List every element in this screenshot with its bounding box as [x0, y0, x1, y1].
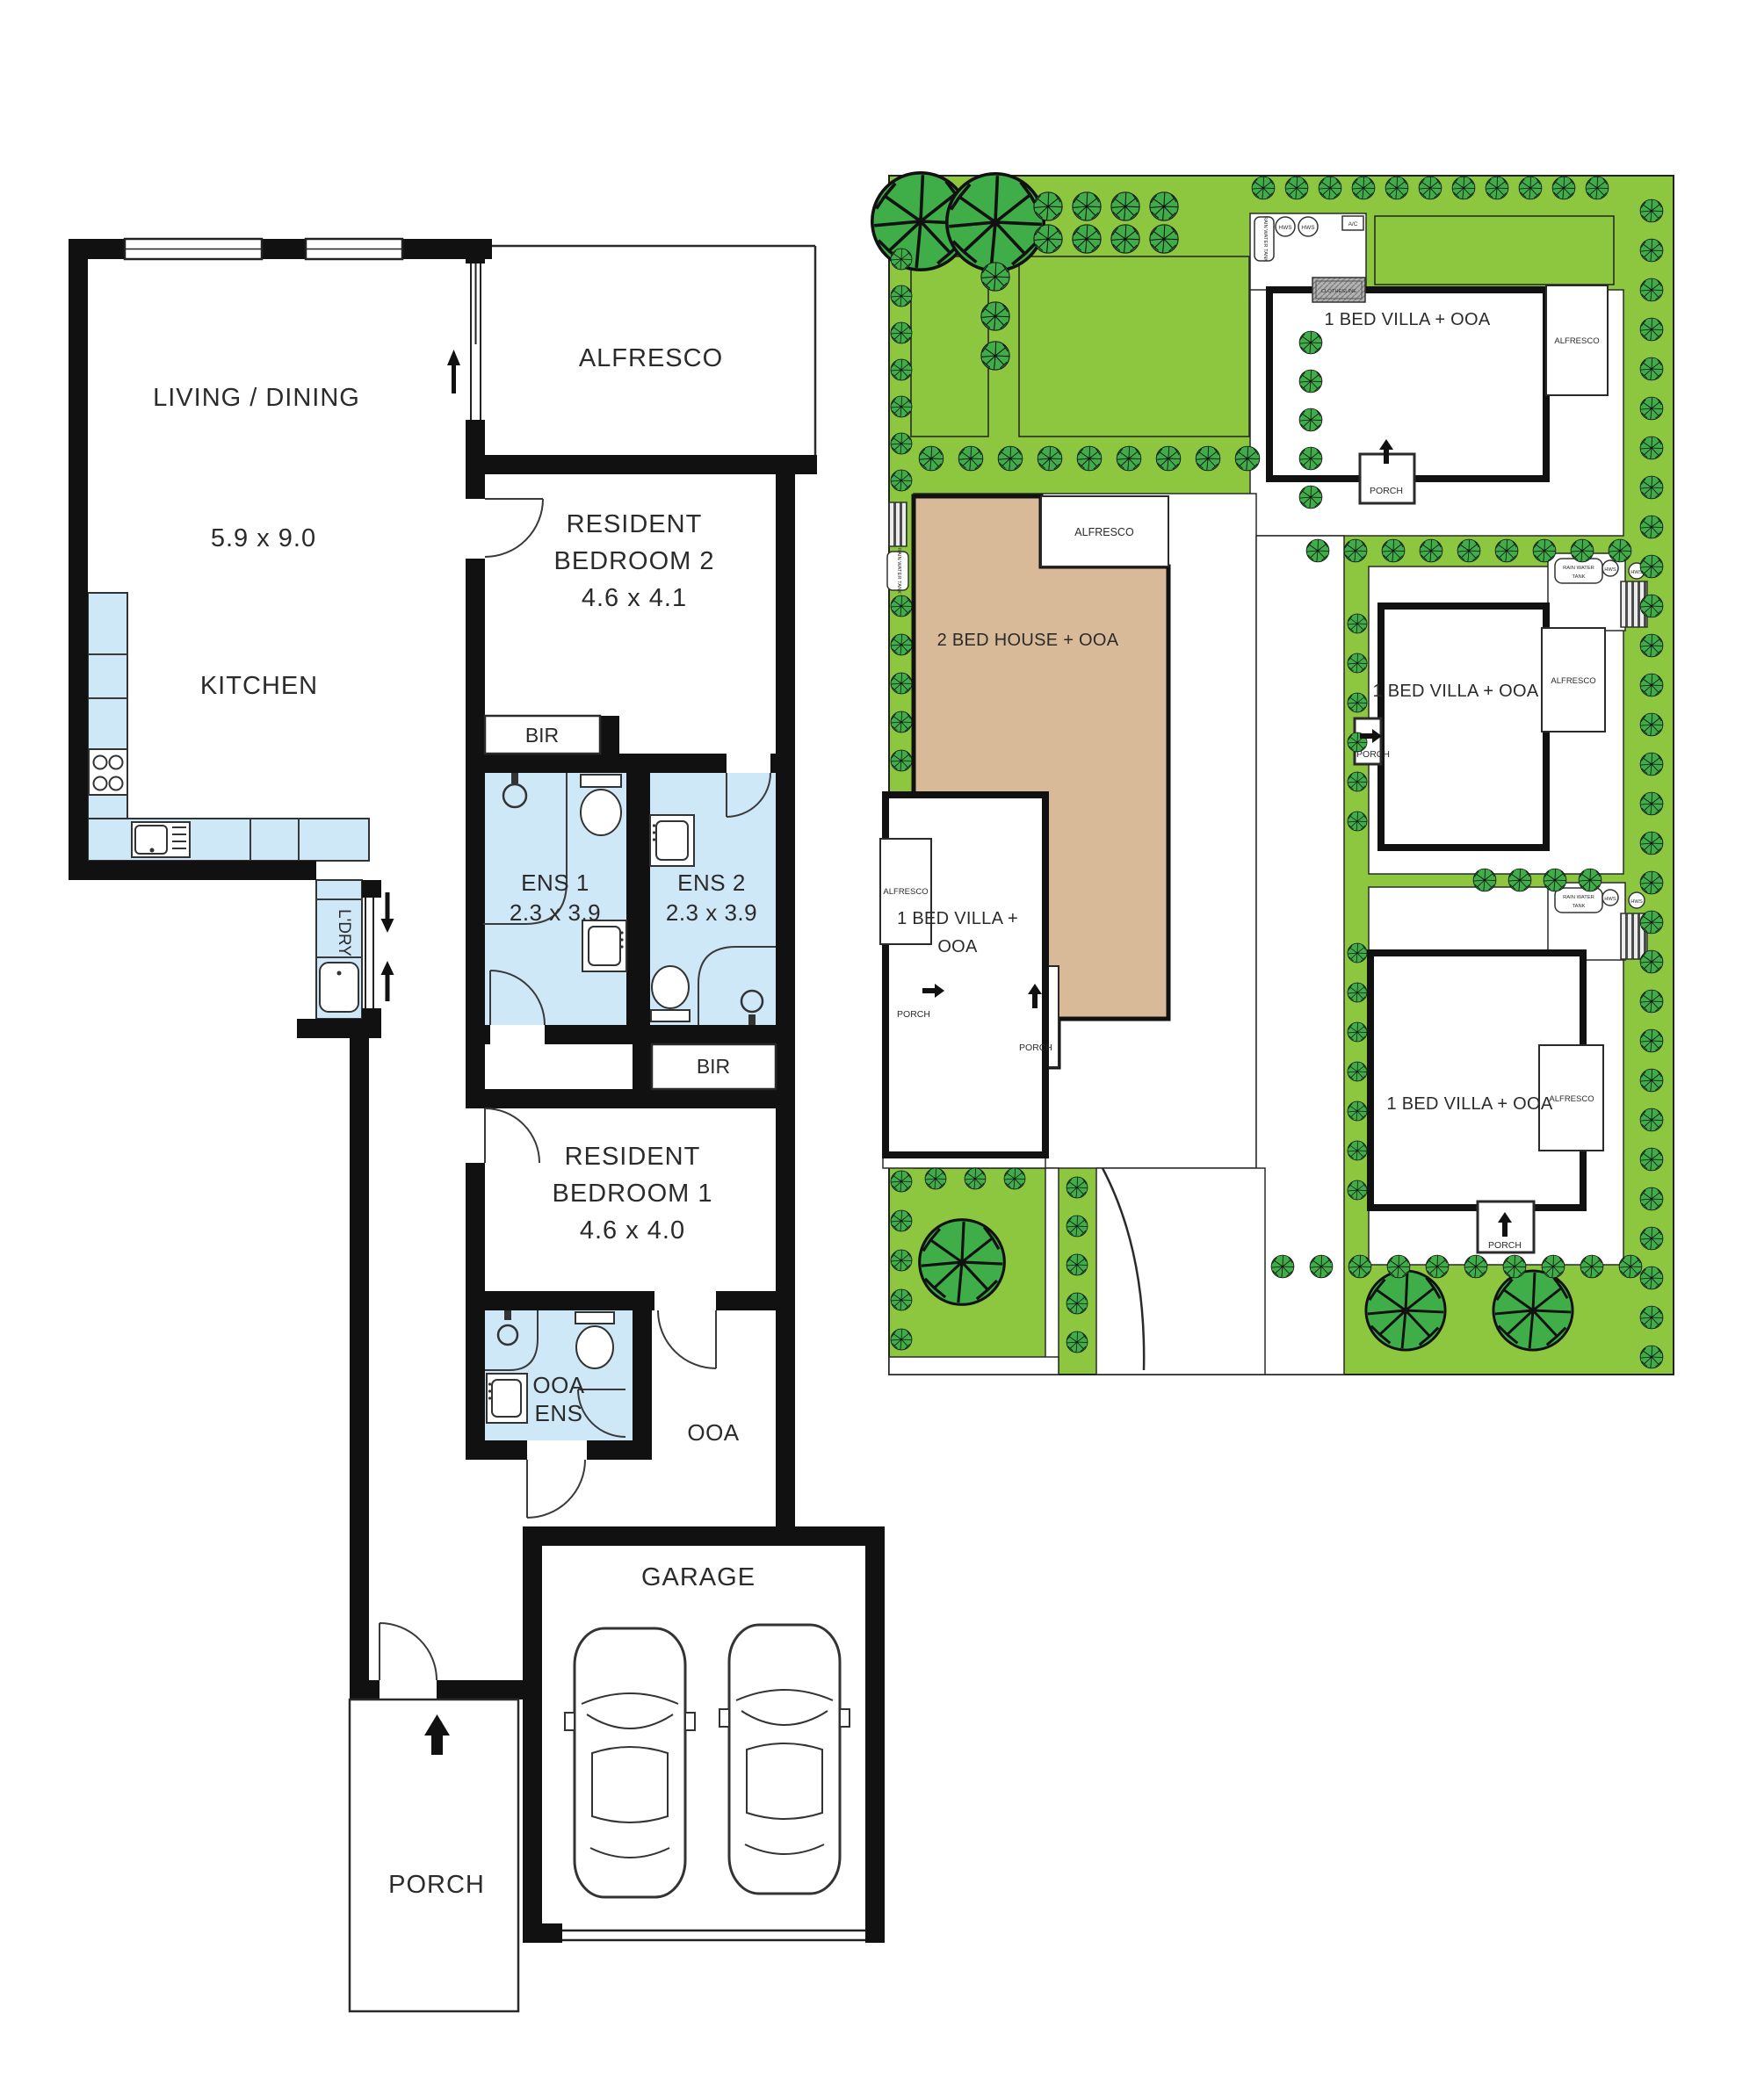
room-label-garage: GARAGE: [641, 1563, 756, 1591]
tree-icon: [981, 263, 1009, 291]
tree-icon: [1366, 1271, 1445, 1350]
tree-icon: [1619, 1255, 1642, 1278]
tree-icon: [1640, 1187, 1663, 1210]
tree-icon: [891, 470, 912, 491]
laundry-arrow-up: [381, 961, 394, 1001]
tree-icon: [891, 595, 912, 617]
floor-plan: LIVING / DINING 5.9 x 9.0 KITCHEN ALFRES…: [69, 239, 885, 2011]
tree-icon: [1348, 614, 1367, 633]
tree-icon: [891, 433, 912, 454]
tree-icon: [1419, 177, 1442, 199]
room-label-living: LIVING / DINING: [153, 384, 360, 412]
tree-icon: [1156, 446, 1181, 471]
room-label-ens1: ENS 1: [521, 870, 589, 896]
room-label-bedroom1-line2: BEDROOM 1: [552, 1180, 712, 1208]
villa2-label: 1 BED VILLA + OOA: [1372, 682, 1538, 701]
tree-icon: [1640, 871, 1663, 894]
tree-icon: [1640, 476, 1663, 499]
tree-icon: [1066, 1331, 1088, 1353]
tree-icon: [891, 711, 912, 732]
tree-icon: [1640, 792, 1663, 815]
tree-icon: [1196, 446, 1220, 471]
house-porch-label: PORCH: [1019, 1043, 1052, 1053]
tree-icon: [1066, 1177, 1088, 1198]
rain-water-tank-label: RAIN WATER TANK: [896, 548, 901, 594]
tree-icon: [1640, 950, 1663, 973]
tree-icon: [1640, 713, 1663, 736]
tree-icon: [1306, 539, 1329, 562]
rain-water-tank-label: TANK: [1572, 904, 1585, 909]
tree-icon: [1111, 192, 1139, 220]
tree-icon: [1640, 674, 1663, 696]
tree-icon: [891, 359, 912, 380]
tree-icon: [1038, 446, 1062, 471]
room-label-laundry: L'DRY: [335, 909, 353, 956]
laundry-tub-icon: [320, 963, 358, 1012]
toilet-icon: [651, 966, 690, 1021]
villa4-alfresco-label: ALFRESCO: [883, 887, 928, 897]
car-icon: [719, 1625, 850, 1894]
tree-icon: [1640, 278, 1663, 301]
tree-icon: [1348, 983, 1367, 1002]
villa1-porch-label: PORCH: [1370, 486, 1403, 496]
house-alfresco-label: ALFRESCO: [1074, 526, 1134, 538]
tree-icon: [1348, 812, 1367, 831]
room-label-bedroom1-line1: RESIDENT: [565, 1143, 701, 1171]
room-dims-living: 5.9 x 9.0: [211, 524, 316, 552]
tree-icon: [1382, 539, 1405, 562]
room-label-ooa-ens-line1: OOA: [532, 1372, 584, 1398]
tree-icon: [998, 446, 1023, 471]
tree-icon: [1640, 595, 1663, 617]
tree-icon: [1552, 177, 1575, 199]
garden-bed: [1019, 256, 1249, 437]
tree-icon: [1452, 177, 1475, 199]
tree-icon: [891, 1329, 912, 1350]
tree-icon: [958, 446, 983, 471]
vanity-icon: [650, 815, 694, 866]
rain-water-tank-label: RAIN WATER TANK: [1262, 216, 1268, 262]
tree-icon: [1457, 539, 1480, 562]
villa1-label: 1 BED VILLA + OOA: [1324, 310, 1490, 329]
tree-icon: [925, 1168, 946, 1189]
tree-icon: [1640, 1108, 1663, 1131]
tree-icon: [1580, 1255, 1603, 1278]
tree-icon: [1348, 1141, 1367, 1160]
tree-icon: [1066, 1254, 1088, 1275]
tree-icon: [1609, 539, 1631, 562]
tree-icon: [1034, 192, 1062, 220]
tree-icon: [1486, 177, 1508, 199]
tree-icon: [1640, 318, 1663, 341]
tree-icon: [1640, 397, 1663, 420]
tree-icon: [965, 1168, 986, 1189]
tree-icon: [891, 249, 912, 270]
tree-icon: [1034, 225, 1062, 253]
tree-icon: [1385, 177, 1408, 199]
tree-icon: [1586, 177, 1609, 199]
slider-arrow-up: [447, 350, 460, 393]
tree-icon: [891, 1171, 912, 1192]
tree-icon: [1640, 1306, 1663, 1329]
car-icon: [565, 1628, 695, 1897]
tree-icon: [1640, 1148, 1663, 1171]
closet-label-bir2: BIR: [697, 1055, 730, 1078]
rain-water-tank-label: RAIN WATER: [1563, 566, 1594, 571]
tree-icon: [1319, 177, 1341, 199]
vanity-icon: [582, 920, 626, 971]
tree-icon: [919, 446, 944, 471]
tree-icon: [1348, 1255, 1371, 1278]
tree-icon: [1066, 1293, 1088, 1314]
hws-label: HWS: [1301, 225, 1315, 231]
tree-icon: [1503, 1255, 1526, 1278]
tree-icon: [1004, 1168, 1025, 1189]
room-dims-bedroom1: 4.6 x 4.0: [580, 1216, 685, 1245]
porch-entry-arrow: [424, 1714, 450, 1755]
tree-icon: [1640, 357, 1663, 380]
tree-icon: [1640, 1069, 1663, 1092]
tree-icon: [891, 634, 912, 655]
villa3-porch-label: PORCH: [1488, 1240, 1522, 1251]
tree-icon: [891, 285, 912, 307]
tree-icon: [1299, 331, 1322, 354]
hws-label: HWS: [1278, 225, 1292, 231]
villa4-label-line1: 1 BED VILLA +: [897, 909, 1018, 928]
tree-icon: [891, 1210, 912, 1231]
hws-label: HWS: [1630, 899, 1643, 905]
tree-icon: [891, 673, 912, 694]
tree-icon: [1508, 869, 1531, 891]
house-label: 2 BED HOUSE + OOA: [937, 631, 1119, 650]
garage-door: [562, 1930, 865, 1940]
tree-icon: [891, 322, 912, 343]
toilet-icon: [581, 775, 621, 835]
tree-icon: [1310, 1255, 1333, 1278]
tree-icon: [1348, 943, 1367, 963]
room-dims-bedroom2: 4.6 x 4.1: [582, 584, 687, 612]
tree-icon: [1077, 446, 1102, 471]
villa2-porch-label: PORCH: [1356, 749, 1390, 760]
tree-icon: [1571, 539, 1594, 562]
room-label-ooa: OOA: [687, 1419, 739, 1446]
tree-icon: [1640, 1346, 1663, 1368]
room-label-bedroom2-line1: RESIDENT: [567, 510, 703, 538]
tree-icon: [1640, 239, 1663, 262]
tree-icon: [1117, 446, 1141, 471]
hws-label: HWS: [1604, 897, 1616, 902]
room-dims-ens1: 2.3 x 3.9: [510, 899, 601, 926]
tree-icon: [1111, 225, 1139, 253]
toilet-icon: [575, 1312, 614, 1368]
tree-icon: [947, 174, 1044, 271]
site-plan: RAIN WATER TANK HWS HWS A/C CLOTHESLINE …: [872, 173, 1674, 1375]
tree-icon: [1348, 1022, 1367, 1042]
room-dims-ens2: 2.3 x 3.9: [666, 899, 757, 926]
tree-icon: [891, 1250, 912, 1271]
villa2-footprint: [1381, 606, 1546, 848]
tree-icon: [1640, 516, 1663, 538]
tree-icon: [1640, 1266, 1663, 1289]
tree-icon: [1348, 653, 1367, 673]
room-label-alfresco: ALFRESCO: [579, 344, 723, 372]
tree-icon: [1150, 225, 1178, 253]
ac-label: A/C: [1348, 221, 1358, 227]
tree-icon: [891, 1289, 912, 1310]
tree-icon: [1495, 539, 1518, 562]
tree-icon: [1073, 225, 1101, 253]
tree-icon: [1271, 1255, 1294, 1278]
tree-icon: [1640, 1029, 1663, 1052]
tree-icon: [1473, 869, 1496, 891]
tree-icon: [1533, 539, 1556, 562]
room-label-porch: PORCH: [388, 1871, 485, 1899]
tree-icon: [1519, 177, 1542, 199]
plan-canvas: RAIN WATER TANK HWS HWS A/C CLOTHESLINE …: [0, 0, 1757, 2100]
clothesline-label: CLOTHESLINE: [1321, 289, 1356, 294]
villa1-alfresco-label: ALFRESCO: [1554, 336, 1599, 346]
hws-label: HWS: [1604, 567, 1616, 573]
closet-label-bir1: BIR: [525, 724, 559, 747]
laundry-arrow-down: [381, 892, 394, 933]
tree-icon: [1640, 1227, 1663, 1250]
villa4-porch-label: PORCH: [897, 1009, 930, 1020]
tree-icon: [1352, 177, 1375, 199]
room-label-ooa-ens-line2: ENS: [535, 1400, 583, 1426]
plan-arrows: [381, 350, 461, 1755]
tree-icon: [1387, 1255, 1410, 1278]
tree-icon: [1544, 869, 1566, 891]
tree-icon: [1640, 555, 1663, 578]
tree-icon: [1299, 370, 1322, 393]
tree-icon: [1348, 772, 1367, 791]
tree-icon: [1348, 1101, 1367, 1121]
villa3-alfresco-label: ALFRESCO: [1549, 1094, 1594, 1104]
tree-icon: [1299, 447, 1322, 470]
tree-icon: [891, 396, 912, 417]
tree-icon: [1073, 192, 1101, 220]
kitchen-sink-icon: [132, 822, 190, 857]
vanity-icon: [487, 1374, 527, 1423]
rain-water-tank-label: TANK: [1572, 574, 1585, 580]
tree-icon: [1299, 486, 1322, 509]
tree-icon: [1285, 177, 1308, 199]
tree-icon: [920, 1220, 1005, 1305]
tree-icon: [981, 302, 1009, 330]
tree-icon: [1252, 177, 1275, 199]
tree-icon: [1348, 1180, 1367, 1200]
villa3-label: 1 BED VILLA + OOA: [1386, 1094, 1552, 1114]
villa2-alfresco-label: ALFRESCO: [1551, 676, 1595, 686]
tree-icon: [1640, 634, 1663, 657]
tree-icon: [1640, 911, 1663, 934]
tree-icon: [1066, 1216, 1088, 1237]
tree-icon: [1493, 1271, 1573, 1350]
tree-icon: [1348, 1062, 1367, 1081]
tree-icon: [1344, 539, 1367, 562]
tree-icon: [1464, 1255, 1487, 1278]
tree-icon: [1150, 192, 1178, 220]
floorplan-page: RAIN WATER TANK HWS HWS A/C CLOTHESLINE …: [0, 0, 1757, 2100]
tree-icon: [1640, 437, 1663, 459]
garden-bed: [1375, 216, 1614, 285]
windows: [125, 239, 485, 1008]
room-label-bedroom2-line2: BEDROOM 2: [553, 547, 714, 575]
rain-water-tank-label: RAIN WATER: [1563, 895, 1594, 900]
tree-icon: [1348, 693, 1367, 712]
tree-icon: [1640, 832, 1663, 855]
tree-icon: [1640, 753, 1663, 776]
tree-icon: [1579, 869, 1602, 891]
tree-icon: [1420, 539, 1442, 562]
tree-icon: [1542, 1255, 1565, 1278]
room-label-ens2: ENS 2: [677, 870, 746, 896]
villa4-label-line2: OOA: [937, 937, 978, 956]
tree-icon: [1640, 199, 1663, 222]
tree-icon: [981, 342, 1009, 370]
tree-icon: [1640, 990, 1663, 1013]
tree-icon: [1299, 408, 1322, 431]
tree-icon: [891, 750, 912, 771]
garden-bed: [911, 256, 988, 437]
room-label-kitchen: KITCHEN: [200, 672, 318, 700]
tree-icon: [1235, 446, 1260, 471]
tree-icon: [1426, 1255, 1449, 1278]
